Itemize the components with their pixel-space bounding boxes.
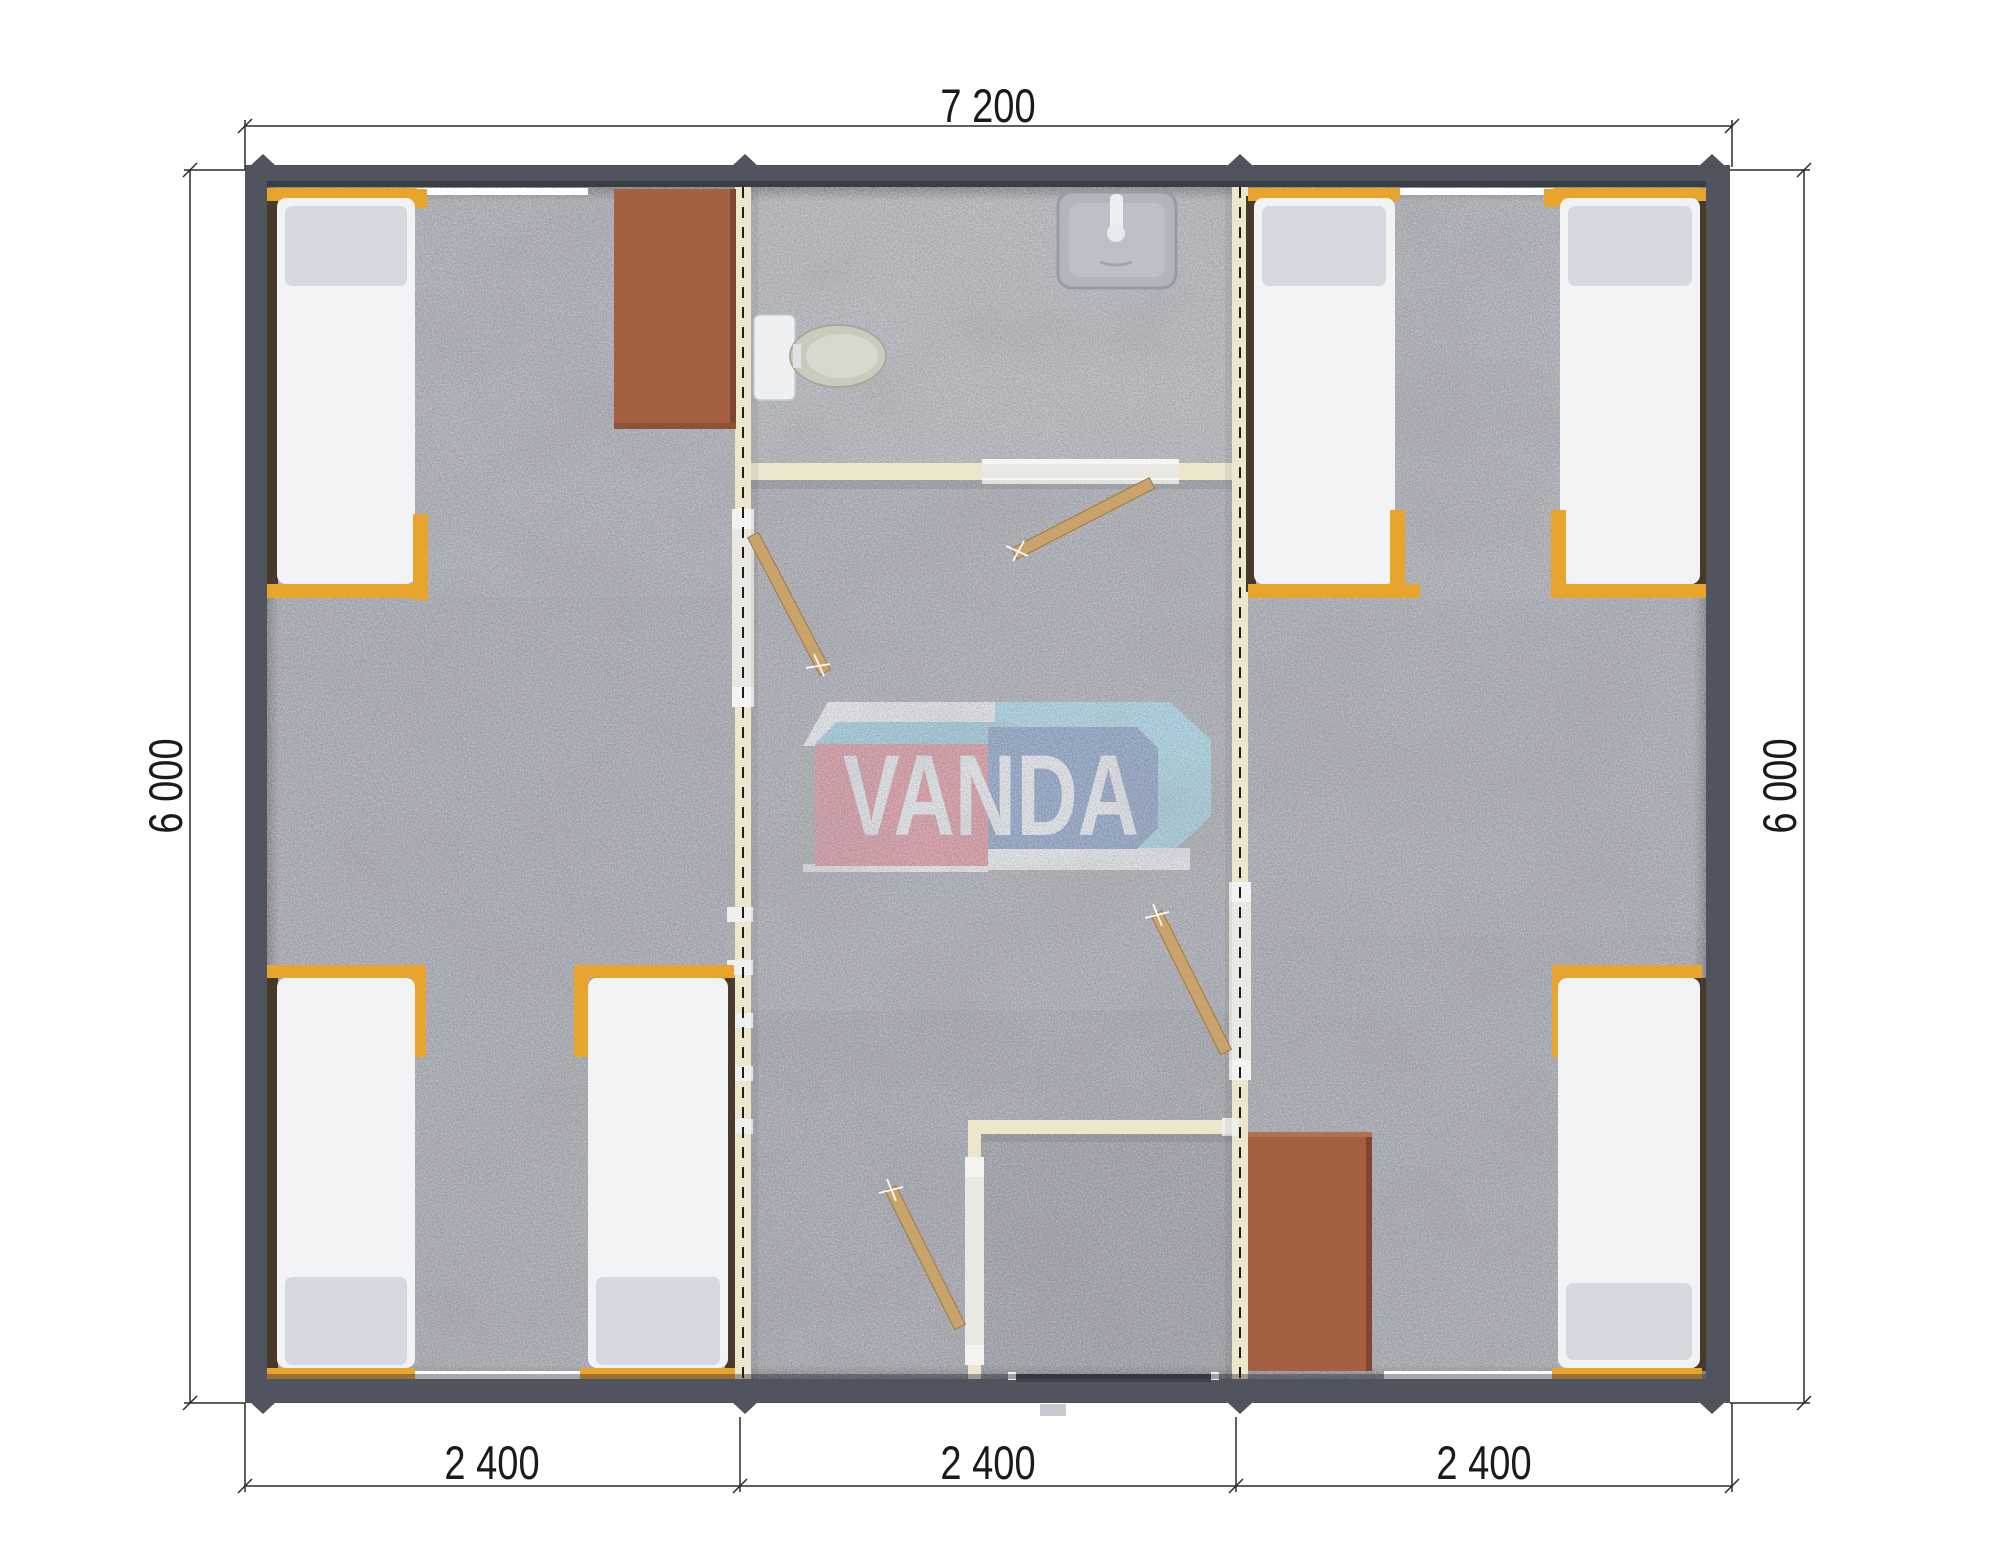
svg-text:2 400: 2 400 (940, 1437, 1035, 1490)
svg-text:6 000: 6 000 (1754, 738, 1807, 833)
svg-text:2 400: 2 400 (1436, 1437, 1531, 1490)
svg-text:2 400: 2 400 (444, 1437, 539, 1490)
svg-text:6 000: 6 000 (140, 738, 193, 833)
svg-text:7 200: 7 200 (940, 80, 1035, 133)
